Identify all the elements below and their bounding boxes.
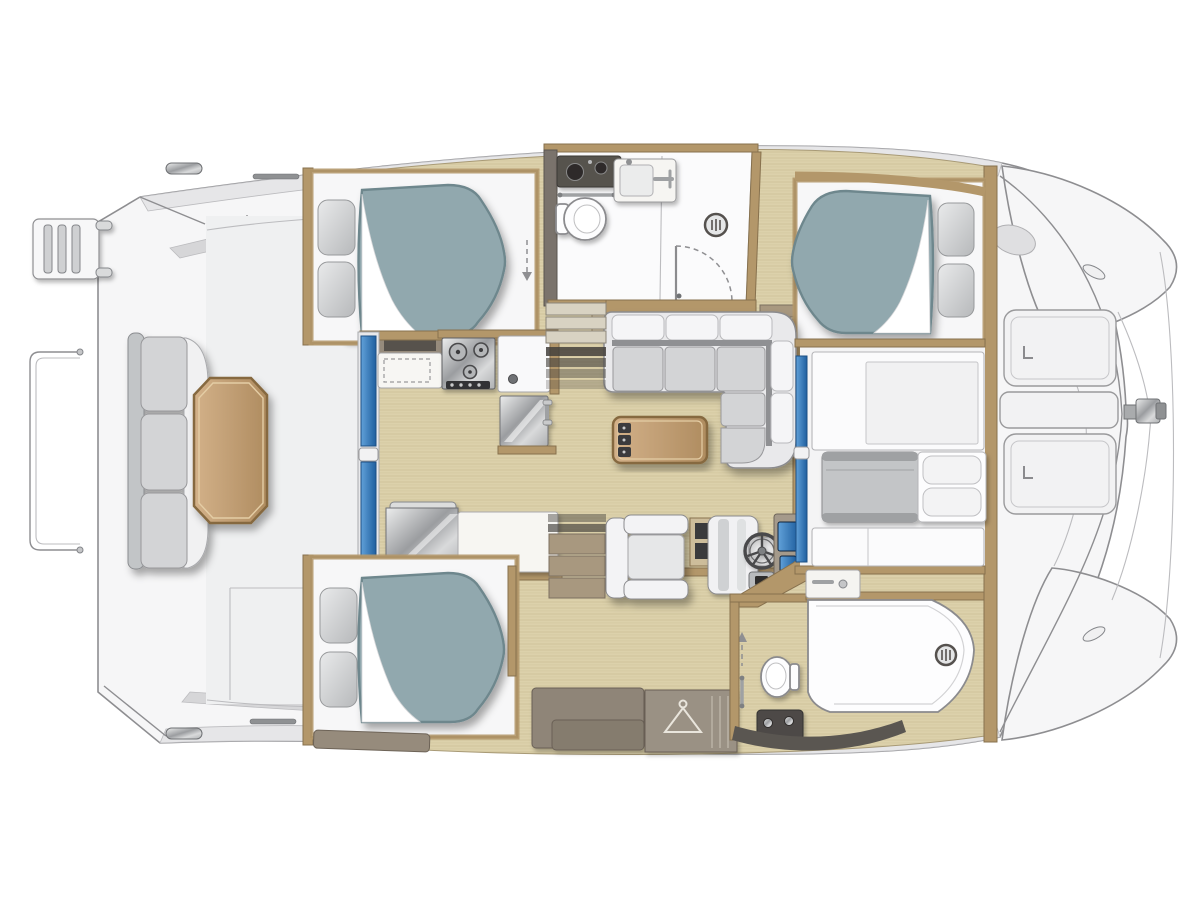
sofa-seat-cushion — [665, 347, 715, 391]
sofa-seat-cushion — [613, 347, 663, 391]
forward-stateroom — [794, 339, 986, 574]
towel-bar — [558, 193, 617, 198]
galley-counter-left — [378, 353, 442, 388]
sofa-back-wall — [606, 300, 756, 313]
door-glass-upper — [796, 356, 807, 452]
pillow — [320, 588, 357, 643]
sofa-right-back — [771, 393, 793, 443]
pillow — [320, 652, 357, 707]
table-top — [194, 378, 267, 523]
sofa-back-cushion — [666, 315, 718, 340]
cabinet-door-dark — [695, 543, 708, 559]
stateroom-door — [794, 356, 809, 562]
companionway-steps-port — [548, 514, 606, 598]
shower-pan — [808, 600, 974, 712]
counter-dot — [839, 580, 847, 588]
pillow — [318, 262, 355, 317]
cockpit-table — [194, 378, 267, 523]
berth-blanket — [822, 452, 918, 522]
shower-drain — [936, 645, 956, 665]
galley-bottom-trim — [498, 446, 556, 454]
head-counter — [806, 570, 860, 598]
head-left-wall — [544, 150, 557, 306]
armchair-seat — [628, 535, 684, 579]
foredeck — [1000, 310, 1166, 514]
storage-cabinets — [532, 688, 644, 750]
deck-hatch-handle-top — [166, 163, 299, 179]
head-left-trim — [730, 600, 739, 740]
pillow — [938, 264, 974, 317]
corridor-divider — [508, 566, 516, 676]
sofa-gap-stripe — [612, 340, 770, 346]
stove — [442, 338, 495, 389]
pillow — [938, 203, 974, 256]
door-handle — [359, 448, 378, 461]
hanging-wardrobe — [645, 690, 737, 752]
stateroom-top-trim — [795, 339, 985, 347]
anchor-windlass — [1124, 399, 1166, 423]
pillow — [318, 200, 355, 255]
sofa-corner-cushion — [721, 428, 765, 463]
armchair — [606, 515, 688, 599]
floor-plan-page: Catamaran yacht interior layout — overhe… — [0, 0, 1200, 900]
storage-panel-inner — [866, 362, 978, 444]
hull-side-shelf — [313, 730, 430, 752]
door-glass-lower — [796, 458, 807, 562]
berth-pillow — [923, 456, 981, 484]
stateroom-berth — [822, 452, 986, 522]
deck-locker-lower — [1004, 434, 1116, 514]
storage-panel-bottom — [812, 528, 984, 566]
head-top-trim — [730, 594, 808, 602]
shower-drain — [705, 214, 727, 236]
sink-drain-dot — [509, 375, 518, 384]
sliding-glass-door — [358, 332, 379, 578]
port-aft-cabin — [311, 557, 517, 752]
stern-rail — [30, 349, 83, 553]
cabinet-door-dark — [695, 523, 708, 539]
deck-locker-strip — [1000, 392, 1118, 428]
toilet — [556, 198, 606, 240]
head-vanity — [557, 156, 621, 187]
sofa-seat-cushion — [717, 347, 765, 391]
armchair-arm — [624, 580, 688, 599]
bench-cushion — [141, 493, 187, 568]
door-glass-upper — [361, 336, 376, 446]
galley-sink-unit — [498, 336, 550, 392]
towel-bar — [740, 676, 745, 709]
berth-pillow — [923, 488, 981, 516]
bench-cushion — [141, 337, 187, 411]
armchair-arm — [624, 515, 688, 534]
galley-refrigerator — [500, 396, 552, 446]
door-handle — [794, 447, 809, 459]
faucet-dot — [626, 159, 632, 165]
deck-locker-upper — [1004, 310, 1116, 386]
starboard-head — [544, 144, 761, 308]
sofa-back-cushion — [720, 315, 772, 340]
head-sink-unit — [614, 159, 676, 202]
sofa-right-back — [771, 341, 793, 391]
head-top-trim — [544, 144, 758, 152]
sofa-seat-cushion — [721, 393, 765, 426]
bow-rail-line — [1160, 252, 1174, 658]
floor-plan-canvas: Catamaran yacht interior layout — overhe… — [0, 0, 1200, 900]
instrument-screen — [778, 522, 798, 551]
sofa-back-cushion — [612, 315, 664, 340]
coffee-table — [613, 417, 707, 463]
starboard-forward-cabin — [792, 176, 985, 343]
bench-cushion — [141, 414, 187, 490]
